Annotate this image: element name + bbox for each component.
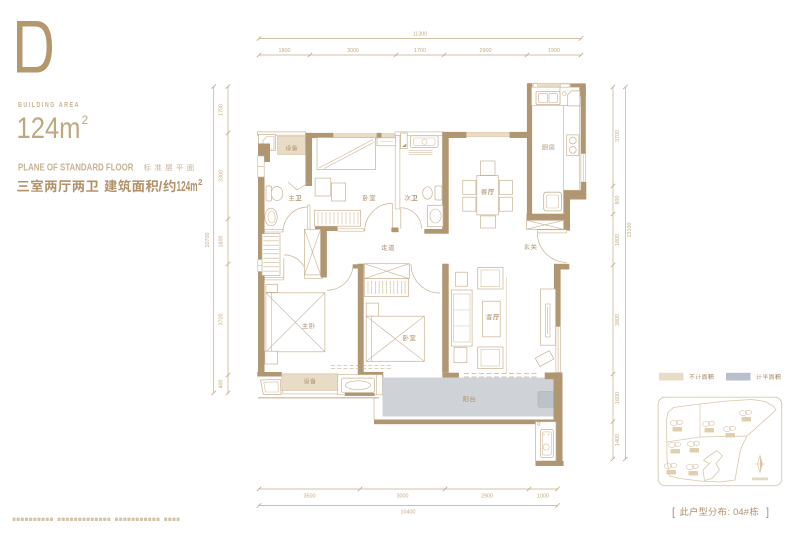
svg-text:10700: 10700 (205, 233, 211, 248)
svg-text:1600: 1600 (219, 236, 225, 248)
svg-text:3700: 3700 (615, 130, 621, 142)
svg-text:04#: 04# (733, 507, 750, 518)
svg-text:BUILDING AREA: BUILDING AREA (18, 100, 80, 109)
svg-text:800: 800 (615, 196, 621, 205)
svg-text:13100: 13100 (627, 223, 633, 238)
svg-text:1700: 1700 (414, 48, 426, 54)
svg-text:1800: 1800 (279, 48, 291, 54)
svg-text:3300: 3300 (219, 170, 225, 182)
svg-text:1800: 1800 (615, 234, 621, 246)
svg-text:11300: 11300 (413, 32, 428, 38)
svg-text:1700: 1700 (219, 104, 225, 116)
svg-text:/: / (159, 179, 163, 194)
svg-text:2900: 2900 (481, 494, 493, 500)
svg-text:1900: 1900 (548, 48, 560, 54)
svg-text:3700: 3700 (219, 314, 225, 326)
svg-text::: : (728, 507, 731, 517)
svg-text:3500: 3500 (304, 494, 316, 500)
svg-text:1600: 1600 (615, 392, 621, 404)
svg-text:2: 2 (198, 178, 203, 187)
svg-text:3000: 3000 (397, 494, 409, 500)
svg-text:124m: 124m (17, 112, 81, 145)
svg-text:[: [ (672, 507, 675, 519)
svg-text:1400: 1400 (615, 434, 621, 446)
svg-text:400: 400 (219, 380, 225, 389)
svg-text:10400: 10400 (401, 510, 416, 516)
svg-text:2900: 2900 (480, 48, 492, 54)
svg-text:PLANE OF STANDARD FLOOR: PLANE OF STANDARD FLOOR (18, 163, 134, 174)
svg-text:1000: 1000 (537, 494, 549, 500)
svg-text:124m: 124m (177, 179, 198, 195)
svg-text:2: 2 (82, 113, 89, 127)
svg-text:3800: 3800 (615, 314, 621, 326)
svg-text:]: ] (766, 507, 769, 519)
svg-text:3000: 3000 (347, 48, 359, 54)
